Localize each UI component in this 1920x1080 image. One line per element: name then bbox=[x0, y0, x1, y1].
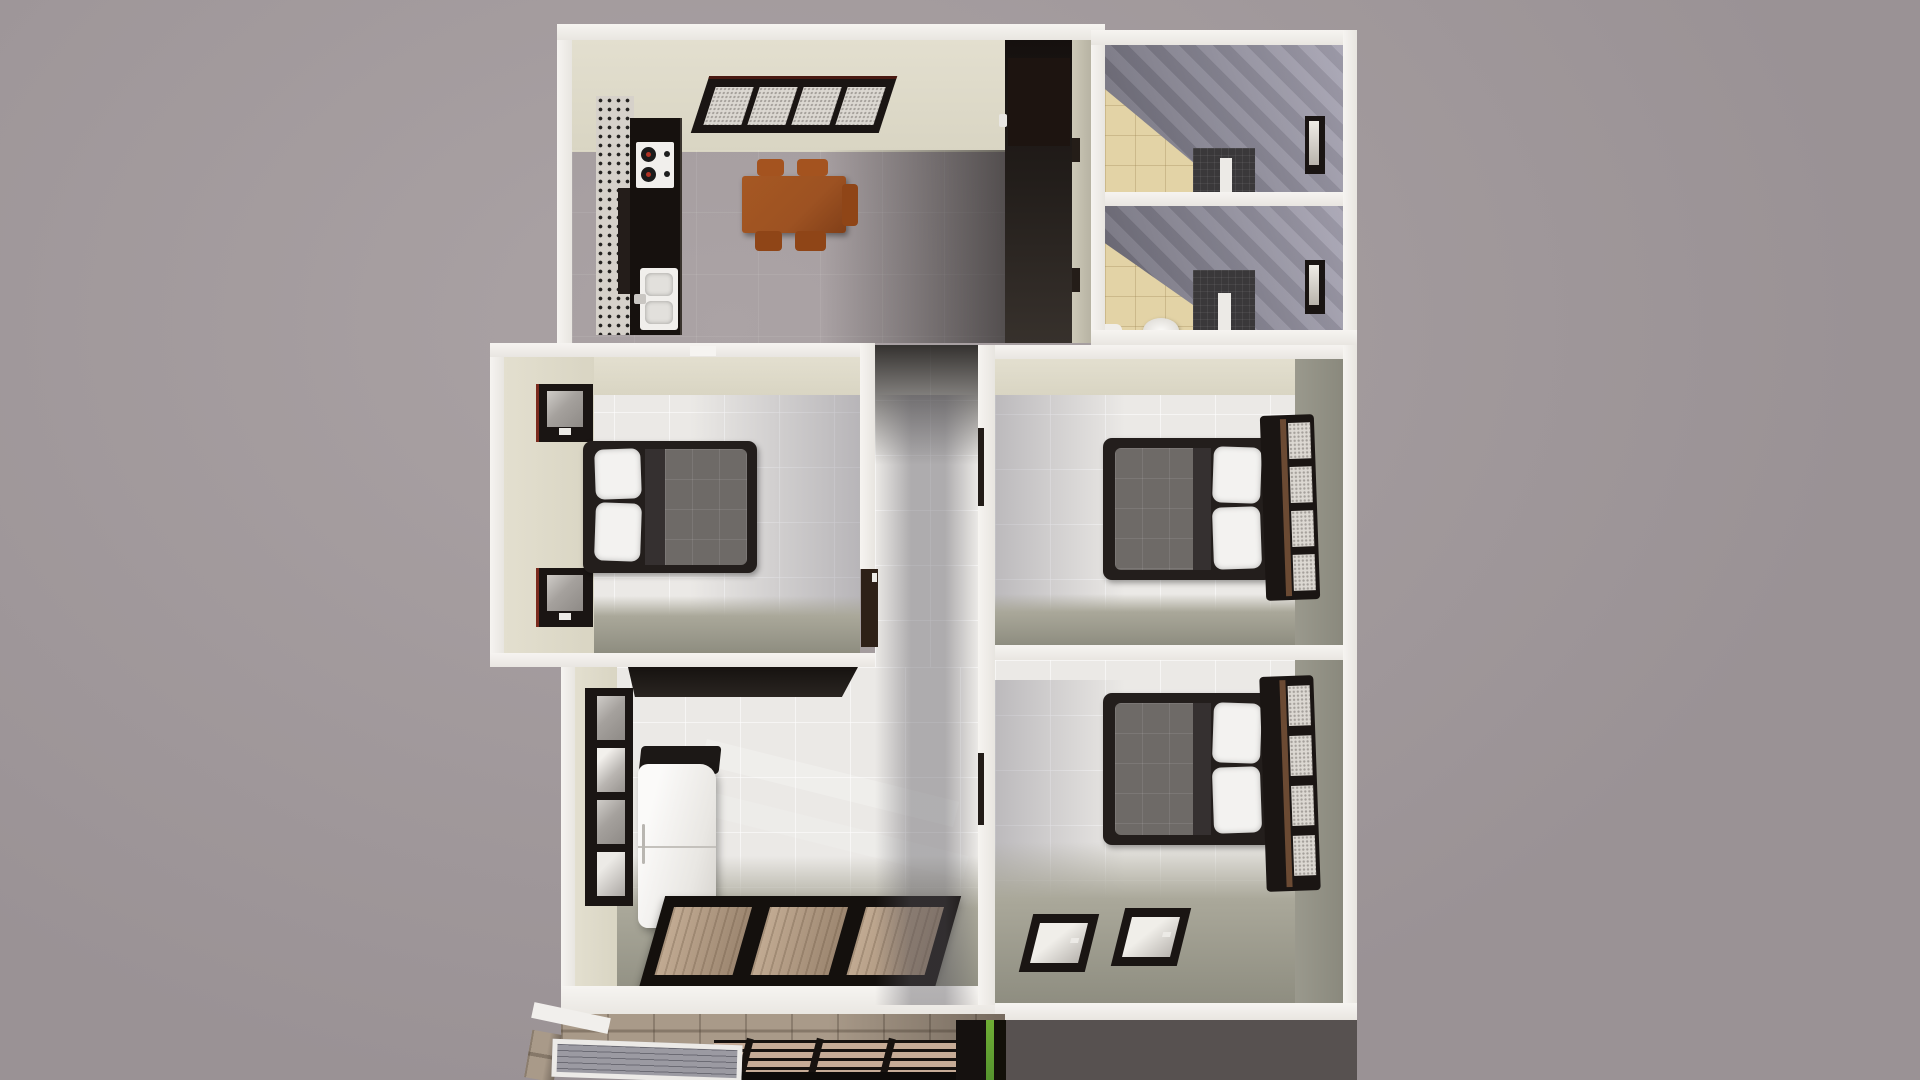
bathroom-lower-partition bbox=[1218, 293, 1231, 330]
living-room-north-wall bbox=[561, 653, 875, 667]
bedroom-door-edge bbox=[978, 428, 984, 506]
bedroom-door-edge bbox=[978, 753, 984, 825]
sink-faucet bbox=[634, 294, 646, 304]
bedroom-east-middle-floor-south bbox=[995, 594, 1343, 645]
window-handle bbox=[559, 613, 571, 620]
pillow bbox=[1212, 766, 1262, 834]
entry-door-handle bbox=[999, 114, 1007, 127]
concrete-slab bbox=[1005, 1020, 1357, 1080]
east-outer-wall bbox=[1343, 345, 1357, 1021]
window-pane bbox=[547, 391, 583, 427]
bathroom-north-wall bbox=[1091, 30, 1357, 45]
window-pane bbox=[597, 696, 625, 740]
window-pane bbox=[1291, 785, 1314, 826]
window-pane bbox=[1290, 466, 1313, 503]
dark-edge bbox=[994, 1020, 1006, 1080]
bedroom-east-south-window bbox=[1259, 675, 1320, 892]
duvet-fold bbox=[1193, 448, 1211, 570]
burner-flame bbox=[646, 152, 651, 157]
deck-grille bbox=[714, 1040, 964, 1076]
pillow bbox=[594, 448, 642, 500]
bathroom-east-wall bbox=[1343, 30, 1357, 345]
window-pane bbox=[791, 87, 841, 125]
wall-shelf bbox=[628, 667, 858, 697]
bathroom-upper-partition bbox=[1220, 158, 1232, 192]
kitchen-sink bbox=[640, 268, 678, 330]
duvet bbox=[1115, 448, 1193, 570]
bathroom-west-wall bbox=[1091, 30, 1105, 345]
dining-chair bbox=[842, 184, 858, 226]
window-pane bbox=[1289, 735, 1312, 776]
bedroom-west-north-wall bbox=[490, 343, 875, 357]
refrigerator-door-seam bbox=[638, 846, 716, 848]
window-pane bbox=[597, 852, 625, 896]
bedroom-east-middle-north-wall-face bbox=[995, 359, 1343, 395]
bathroom-lower-window bbox=[1305, 260, 1325, 314]
bathroom-upper-window bbox=[1305, 116, 1325, 174]
window-handle bbox=[1070, 938, 1079, 943]
dining-chair bbox=[757, 159, 784, 176]
doorframe-tab bbox=[690, 346, 716, 356]
dining-table bbox=[742, 176, 846, 233]
dining-chair bbox=[797, 159, 828, 176]
window-pane bbox=[597, 800, 625, 844]
duvet-fold bbox=[1193, 703, 1211, 835]
stove-knob bbox=[664, 151, 670, 157]
bathroom-divider-wall bbox=[1105, 192, 1343, 206]
sliding-door-panel bbox=[751, 907, 848, 975]
hallway-shadow-band bbox=[875, 395, 978, 1005]
pillow bbox=[594, 502, 642, 562]
window-handle bbox=[559, 428, 571, 435]
window-pane bbox=[1122, 917, 1180, 957]
pillow bbox=[1212, 446, 1262, 504]
bedroom-east-middle-north-wall bbox=[995, 345, 1357, 359]
bedroom-west-window-1 bbox=[536, 384, 593, 442]
pillow bbox=[1212, 506, 1262, 570]
window-pane bbox=[1288, 422, 1311, 459]
window-pane bbox=[1309, 265, 1319, 305]
window-pane bbox=[1288, 685, 1311, 726]
entry-door bbox=[1008, 58, 1070, 146]
window-pane bbox=[1293, 554, 1316, 591]
refrigerator-handle bbox=[642, 824, 645, 864]
bedroom-east-middle-window bbox=[1260, 414, 1320, 601]
kitchen-north-wall bbox=[557, 24, 1105, 40]
corridor-east-wall-face bbox=[1072, 40, 1091, 343]
bedroom-east-middle-bed bbox=[1103, 438, 1273, 580]
bedroom-west-east-wall bbox=[860, 343, 875, 569]
window-pane bbox=[835, 87, 885, 125]
ribbed-canopy bbox=[551, 1039, 742, 1080]
window-pane bbox=[747, 87, 797, 125]
bedroom-west-west-wall bbox=[490, 343, 504, 667]
window-pane bbox=[547, 575, 583, 611]
window-pane bbox=[1309, 121, 1319, 165]
window-pane bbox=[1030, 923, 1088, 963]
bedroom-west-bed bbox=[583, 441, 757, 573]
sink-basin bbox=[645, 301, 673, 324]
bedroom-divider-wall bbox=[995, 645, 1357, 660]
bathroom-door-edge bbox=[1072, 138, 1080, 162]
living-room-west-window bbox=[585, 688, 633, 906]
stove-knob bbox=[664, 171, 670, 177]
bedroom-west-window-2 bbox=[536, 568, 593, 627]
green-post bbox=[986, 1020, 994, 1080]
kitchen-north-window bbox=[691, 76, 898, 133]
dining-chair bbox=[755, 231, 782, 251]
bathroom-door-edge bbox=[1072, 268, 1080, 292]
sliding-door-panel bbox=[655, 907, 752, 975]
duvet-fold bbox=[645, 449, 665, 565]
deck-edge bbox=[714, 1072, 964, 1080]
kitchen-west-wall bbox=[557, 24, 572, 345]
window-pane bbox=[703, 87, 753, 125]
bedroom-east-south-bed bbox=[1103, 693, 1273, 845]
window-handle bbox=[1162, 932, 1171, 937]
stove-cooktop bbox=[636, 142, 674, 188]
kitchen-floor-shadow bbox=[822, 150, 1005, 343]
living-room-west-wall bbox=[561, 653, 575, 1015]
duvet bbox=[665, 449, 747, 565]
sink-basin bbox=[645, 273, 673, 296]
window-pane bbox=[1293, 835, 1316, 876]
window-pane bbox=[1291, 510, 1314, 547]
duvet bbox=[1115, 703, 1193, 835]
dining-chair bbox=[795, 231, 826, 251]
burner-flame bbox=[646, 172, 651, 177]
window-pane bbox=[597, 748, 625, 792]
pillow bbox=[1212, 702, 1262, 764]
floorplan-render bbox=[0, 0, 1920, 1080]
